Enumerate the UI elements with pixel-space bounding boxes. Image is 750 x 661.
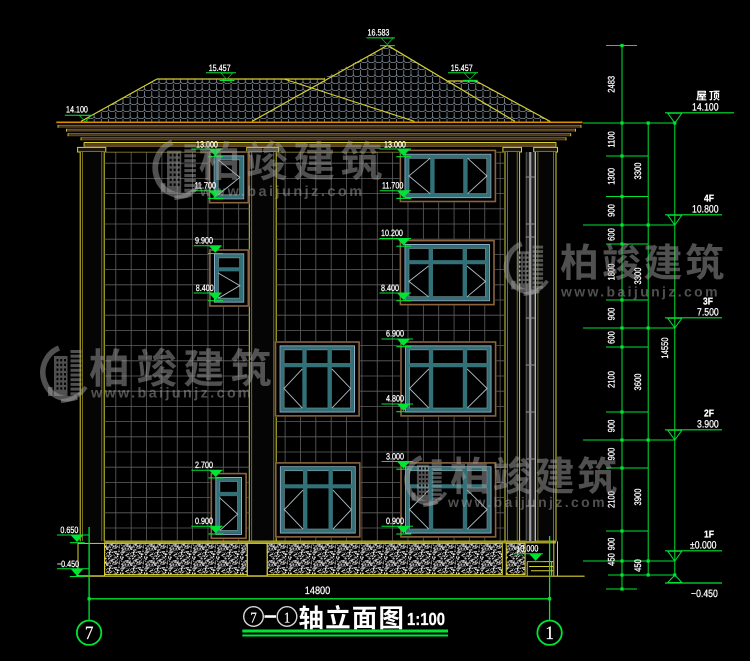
svg-text:www.baijunjz.com: www.baijunjz.com [199,184,365,200]
svg-text:900: 900 [607,204,618,217]
svg-text:14.100: 14.100 [692,102,719,114]
svg-text:9.900: 9.900 [195,236,213,246]
svg-text:3.000: 3.000 [386,452,404,462]
svg-text:10.200: 10.200 [381,228,403,238]
svg-text:3600: 3600 [633,374,644,391]
svg-text:900: 900 [607,538,618,551]
svg-text:3.900: 3.900 [697,419,719,431]
svg-text:0.900: 0.900 [195,516,213,526]
svg-text:3900: 3900 [633,489,644,506]
svg-text:1: 1 [545,623,554,644]
svg-text:10.800: 10.800 [692,204,719,216]
svg-text:14800: 14800 [305,585,331,597]
svg-text:1100: 1100 [607,131,618,147]
svg-text:−0.450: −0.450 [691,588,718,600]
svg-text:−0.450: −0.450 [57,559,79,569]
svg-text:8.400: 8.400 [196,283,214,293]
svg-text:11.700: 11.700 [382,181,403,191]
svg-text:900: 900 [607,448,618,461]
svg-text:7: 7 [250,611,257,627]
svg-text:2483: 2483 [607,76,618,93]
svg-text:7.500: 7.500 [697,307,719,319]
svg-text:4.800: 4.800 [386,394,404,404]
svg-text:600: 600 [607,331,618,344]
svg-text:2.700: 2.700 [195,460,213,470]
svg-text:2100: 2100 [607,371,618,388]
svg-text:0.650: 0.650 [60,525,78,535]
svg-text:1:100: 1:100 [407,609,445,629]
svg-text:±0.000: ±0.000 [690,540,717,552]
svg-text:3300: 3300 [633,163,644,180]
svg-text:8.400: 8.400 [381,283,399,293]
svg-text:900: 900 [607,420,618,433]
svg-text:16.583: 16.583 [368,27,390,37]
svg-text:www.baijunjz.com: www.baijunjz.com [560,284,720,300]
svg-text:1: 1 [284,611,290,627]
svg-text:450: 450 [633,559,644,572]
svg-text:13.000: 13.000 [384,139,406,149]
svg-text:±0.000: ±0.000 [517,544,539,554]
svg-text:7: 7 [85,623,94,644]
svg-text:1300: 1300 [607,168,618,185]
svg-text:900: 900 [607,308,618,321]
svg-text:www.baijunjz.com: www.baijunjz.com [90,386,253,402]
svg-text:6.900: 6.900 [386,329,404,339]
svg-text:15.457: 15.457 [451,63,473,73]
svg-text:2100: 2100 [607,491,618,508]
svg-text:14.100: 14.100 [66,105,88,115]
svg-text:14550: 14550 [660,337,671,358]
svg-text:600: 600 [607,228,618,241]
svg-text:15.457: 15.457 [209,63,231,73]
svg-text:0.900: 0.900 [386,516,404,526]
svg-text:450: 450 [607,553,618,566]
svg-text:www.baijunjz.com: www.baijunjz.com [447,494,607,510]
